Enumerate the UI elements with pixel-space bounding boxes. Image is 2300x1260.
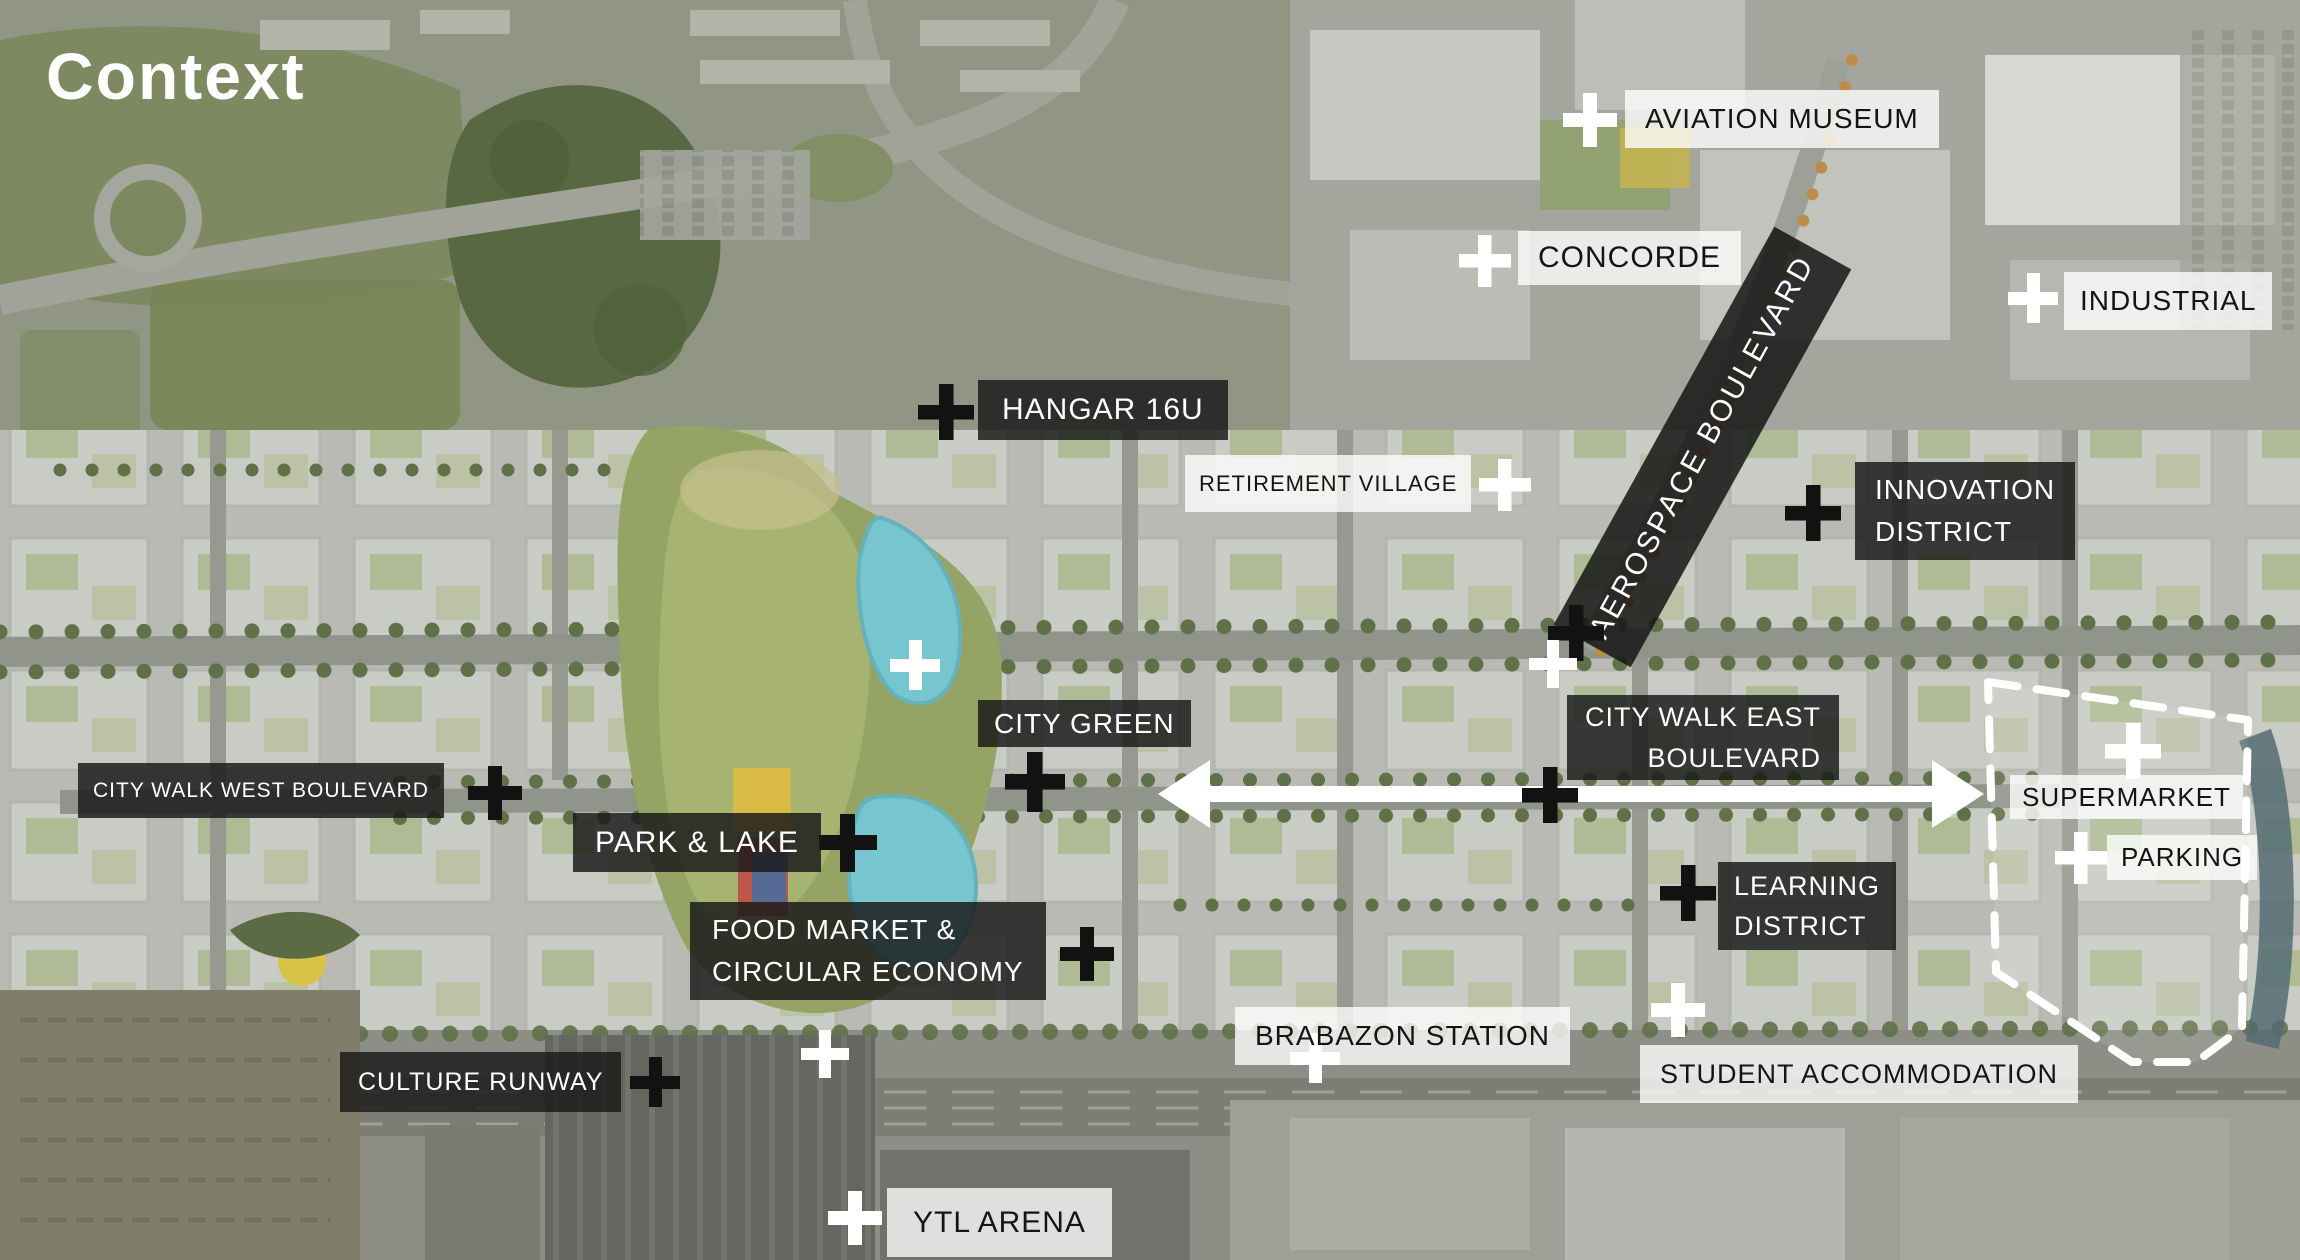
label-industrial: INDUSTRIAL [2064, 272, 2272, 330]
page-title: Context [46, 38, 306, 114]
label-ytl-arena: YTL ARENA [887, 1188, 1112, 1257]
plus-icon [1785, 485, 1841, 541]
plus-icon [1660, 865, 1716, 921]
plus-icon [819, 814, 877, 872]
label-line: INNOVATION [1875, 469, 2055, 511]
label-line: DISTRICT [1734, 906, 1867, 947]
plus-icon [1529, 640, 1577, 688]
context-masterplan-slide: AEROSPACE BOULEVARD AVIATION MUSEUM CONC… [0, 0, 2300, 1260]
label-line: FOOD MARKET & [712, 909, 956, 951]
label-innovation-district: INNOVATION DISTRICT [1855, 462, 2075, 560]
label-aviation-museum: AVIATION MUSEUM [1625, 90, 1939, 148]
plus-icon [1005, 752, 1065, 812]
plus-icon [828, 1191, 882, 1245]
label-retirement-village: RETIREMENT VILLAGE [1185, 455, 1471, 512]
label-city-green: CITY GREEN [978, 700, 1191, 747]
label-parking: PARKING [2107, 835, 2257, 880]
plus-icon [2008, 273, 2058, 323]
label-line: BOULEVARD [1648, 738, 1822, 779]
plus-icon [2105, 723, 2161, 779]
label-city-walk-west-boulevard: CITY WALK WEST BOULEVARD [78, 763, 444, 818]
plus-icon [2055, 832, 2107, 884]
label-park-and-lake: PARK & LAKE [573, 813, 821, 872]
label-city-walk-east-boulevard: CITY WALK EAST BOULEVARD [1567, 695, 1839, 780]
plus-icon [1651, 983, 1705, 1037]
label-student-accommodation: STUDENT ACCOMMODATION [1640, 1045, 2078, 1103]
label-brabazon-station: BRABAZON STATION [1235, 1007, 1570, 1065]
label-food-market-circular-economy: FOOD MARKET & CIRCULAR ECONOMY [690, 902, 1046, 1000]
plus-icon [918, 384, 974, 440]
label-hangar-16u: HANGAR 16U [978, 380, 1228, 440]
label-learning-district: LEARNING DISTRICT [1718, 862, 1896, 950]
plus-icon [630, 1057, 680, 1107]
label-concorde: CONCORDE [1518, 231, 1741, 285]
plus-icon [801, 1030, 849, 1078]
label-line: CIRCULAR ECONOMY [712, 951, 1024, 993]
label-culture-runway: CULTURE RUNWAY [340, 1052, 621, 1112]
plus-icon [1060, 927, 1114, 981]
label-line: LEARNING [1734, 866, 1880, 907]
label-line: CITY WALK EAST [1585, 697, 1821, 738]
plus-icon [1459, 235, 1511, 287]
plus-icon [1563, 93, 1617, 147]
plus-icon [890, 640, 940, 690]
label-supermarket: SUPERMARKET [2010, 775, 2243, 819]
plus-icon [468, 766, 522, 820]
plus-icon [1479, 459, 1531, 511]
label-line: DISTRICT [1875, 511, 2012, 553]
